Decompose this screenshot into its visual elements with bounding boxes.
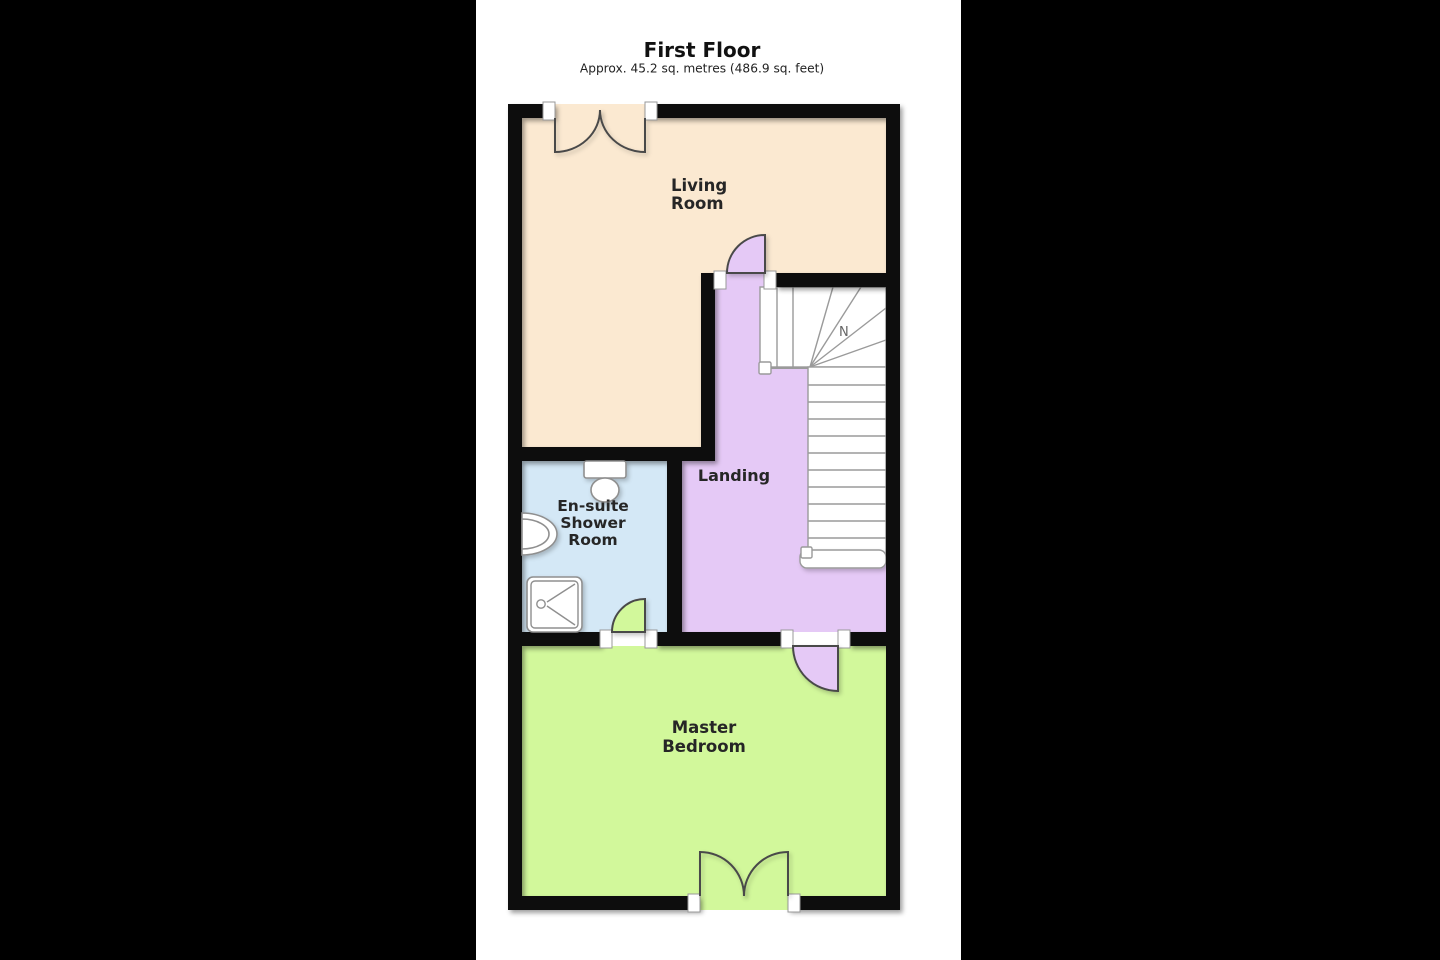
page-title: First Floor (644, 38, 761, 62)
living-room-label-line1: Living (671, 176, 727, 195)
newel-post-bottom (801, 547, 812, 558)
wall-landing-bedroom-right (849, 632, 900, 646)
stairs-bottom-step (800, 550, 886, 568)
stairs-upper-flight (760, 287, 886, 367)
wall-right (886, 104, 900, 910)
floorplan-canvas: First Floor Approx. 45.2 sq. metres (486… (0, 0, 1440, 960)
wall-top-right (645, 104, 900, 118)
wall-living-ensuite (508, 447, 715, 461)
wall-bottom-right (788, 896, 900, 910)
wall-ensuite-landing (667, 447, 682, 646)
newel-post-top (759, 362, 771, 374)
wall-stairs-top (776, 273, 900, 287)
page-subtitle: Approx. 45.2 sq. metres (486.9 sq. feet) (580, 62, 824, 76)
master-bedroom-label-line2: Bedroom (662, 737, 746, 756)
bottom-door-opening (700, 896, 788, 910)
master-bedroom-label-line1: Master (672, 718, 737, 737)
shower-tray-icon (527, 577, 582, 632)
wall-left (508, 104, 522, 910)
floorplan-page: First Floor Approx. 45.2 sq. metres (486… (0, 0, 1440, 960)
wall-ensuite-bedroom (508, 632, 601, 646)
stairs-lower-flight (808, 367, 886, 554)
ensuite-label-line3: Room (568, 531, 617, 549)
landing-label: Landing (698, 466, 770, 485)
wall-landing-bedroom-left (656, 632, 782, 646)
wall-bottom-left (508, 896, 700, 910)
ensuite-label-line2: Shower (560, 514, 626, 532)
stairs-winder-mark: N (839, 325, 849, 340)
living-room-label-line2: Room (671, 194, 724, 213)
ensuite-label-line1: En-suite (557, 497, 629, 515)
wall-living-landing (701, 273, 715, 461)
